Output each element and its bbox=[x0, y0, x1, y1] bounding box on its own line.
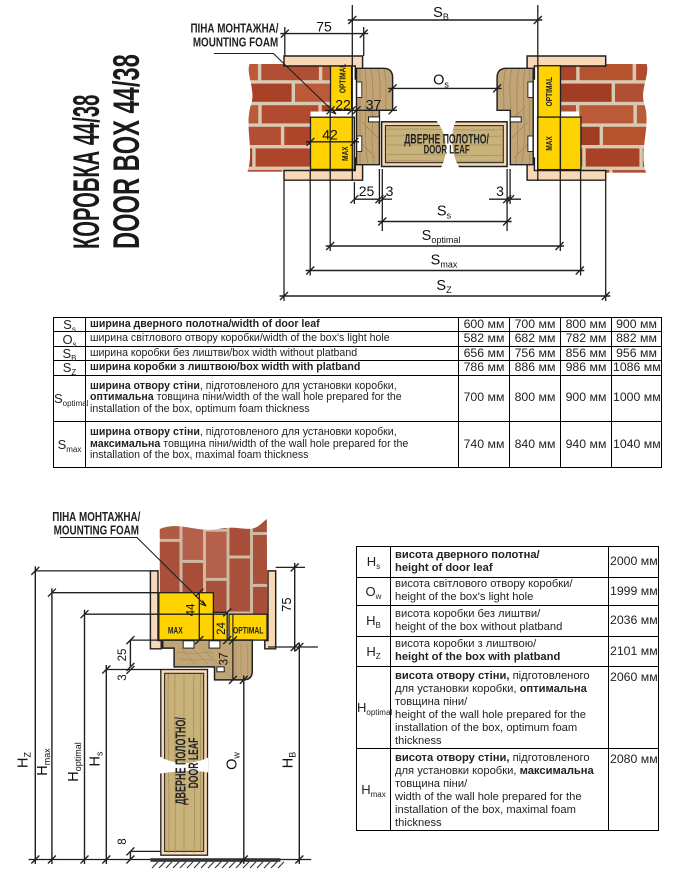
svg-text:DOOR LEAF: DOOR LEAF bbox=[187, 738, 201, 789]
svg-text:ПІНА МОНТАЖНА/: ПІНА МОНТАЖНА/ bbox=[52, 511, 141, 524]
svg-text:75: 75 bbox=[316, 19, 332, 35]
svg-text:Ow: Ow bbox=[225, 752, 242, 770]
svg-text:MOUNTING FOAM: MOUNTING FOAM bbox=[54, 524, 139, 537]
svg-text:MOUNTING FOAM: MOUNTING FOAM bbox=[193, 37, 278, 50]
svg-text:3: 3 bbox=[386, 183, 394, 199]
svg-text:OPTIMAL: OPTIMAL bbox=[233, 625, 263, 635]
svg-text:3: 3 bbox=[496, 183, 504, 199]
svg-text:ПІНА МОНТАЖНА/: ПІНА МОНТАЖНА/ bbox=[190, 23, 279, 36]
svg-text:25: 25 bbox=[359, 183, 375, 199]
svg-text:MAX: MAX bbox=[544, 136, 554, 151]
svg-text:OPTIMAL: OPTIMAL bbox=[544, 76, 554, 106]
svg-text:37: 37 bbox=[366, 96, 382, 112]
svg-text:Soptimal: Soptimal bbox=[422, 228, 461, 245]
svg-text:Hoptimal: Hoptimal bbox=[66, 742, 83, 782]
svg-text:3: 3 bbox=[117, 674, 129, 680]
svg-text:25: 25 bbox=[117, 649, 129, 662]
svg-text:SB: SB bbox=[433, 5, 449, 22]
svg-text:8: 8 bbox=[117, 838, 129, 844]
svg-text:MAX: MAX bbox=[340, 146, 350, 161]
svg-text:37: 37 bbox=[218, 653, 230, 666]
svg-text:24: 24 bbox=[216, 622, 228, 635]
svg-text:HZ: HZ bbox=[16, 752, 33, 768]
svg-text:Smax: Smax bbox=[431, 253, 458, 270]
svg-text:DOOR LEAF: DOOR LEAF bbox=[424, 144, 470, 157]
svg-text:Hs: Hs bbox=[88, 751, 105, 766]
svg-text:44: 44 bbox=[186, 603, 198, 616]
svg-text:SZ: SZ bbox=[436, 278, 452, 295]
svg-text:Os: Os bbox=[433, 73, 449, 90]
svg-text:MAX: MAX bbox=[168, 625, 184, 635]
svg-text:HB: HB bbox=[281, 752, 298, 769]
svg-text:OPTIMAL: OPTIMAL bbox=[338, 63, 348, 93]
svg-text:75: 75 bbox=[279, 597, 294, 611]
svg-text:22: 22 bbox=[335, 96, 351, 112]
svg-text:Ss: Ss bbox=[437, 204, 452, 221]
svg-text:Hmax: Hmax bbox=[35, 748, 52, 776]
